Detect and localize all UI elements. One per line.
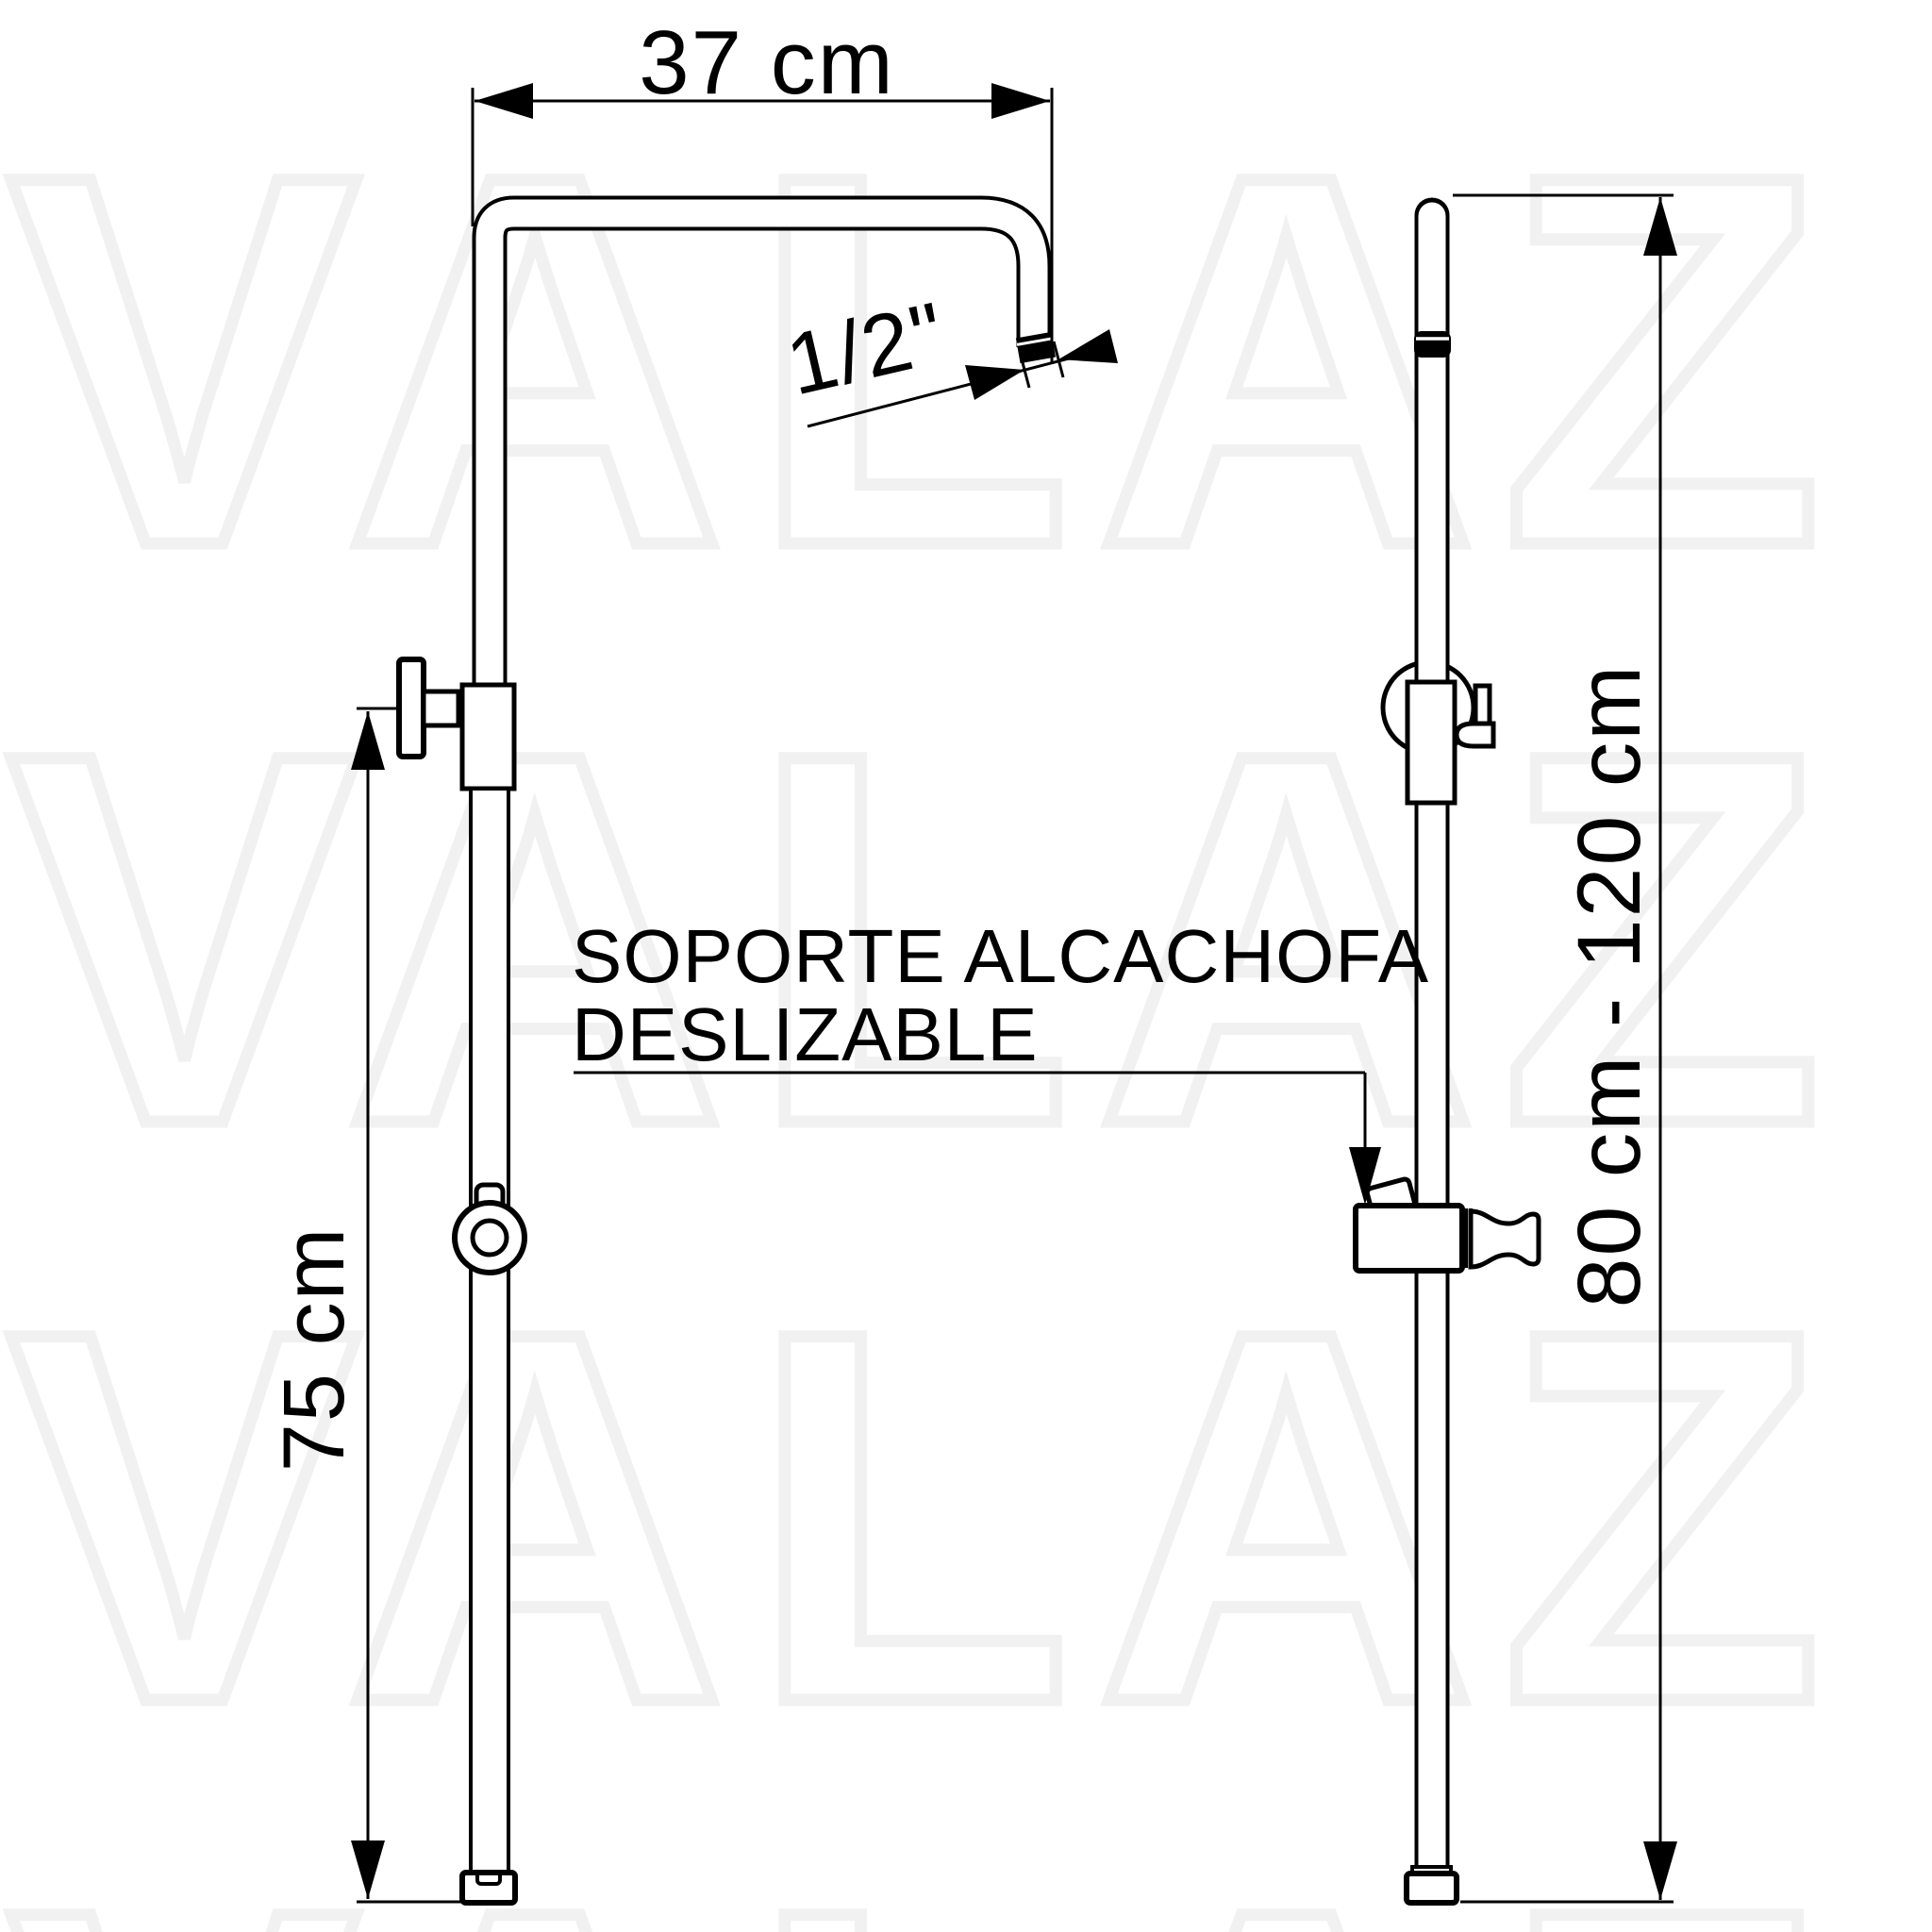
left-pole-lower-tube	[471, 789, 508, 1873]
wall-bracket-arm	[424, 691, 458, 725]
shower-arm-outline	[490, 213, 1034, 691]
wall-bracket-plate	[399, 659, 424, 757]
bracket-hook-stem	[1475, 686, 1490, 725]
handset-holder-clamp	[1471, 1211, 1539, 1267]
pole-collar-ring	[1414, 331, 1451, 358]
technical-drawing-canvas: VALAZ VALAZ VALAZ VALAZ	[0, 0, 1932, 1932]
right-pole-sleeve	[1407, 682, 1455, 803]
callout-leader	[574, 1073, 1381, 1205]
arrowhead-down	[1643, 1841, 1677, 1900]
bracket-hook-foot	[1457, 724, 1493, 746]
right-pole-bottom-cap	[1407, 1874, 1457, 1903]
callout-line-1: SOPORTE ALCACHOFA	[572, 917, 1429, 995]
shower-arm-fill	[490, 213, 1034, 691]
slider-knob-inner	[473, 1221, 507, 1255]
column-height-label: 75 cm	[267, 1207, 361, 1491]
riser-height-range-label: 80 cm - 120 cm	[1562, 653, 1657, 1319]
arrowhead-left	[475, 83, 533, 119]
dimension-column-height	[351, 708, 462, 1902]
arm-length-label: 37 cm	[531, 11, 1003, 115]
callout-line-2: DESLIZABLE	[572, 995, 1429, 1074]
left-pole-sleeve	[462, 685, 514, 789]
left-pole-bottom-cap	[462, 1873, 515, 1903]
thread-arrow-left	[965, 365, 1024, 400]
arrowhead-down	[351, 1840, 385, 1899]
sliding-holder-callout: SOPORTE ALCACHOFA DESLIZABLE	[572, 917, 1429, 1074]
handset-holder-body	[1356, 1206, 1462, 1271]
thread-arrow-right	[1058, 329, 1118, 363]
